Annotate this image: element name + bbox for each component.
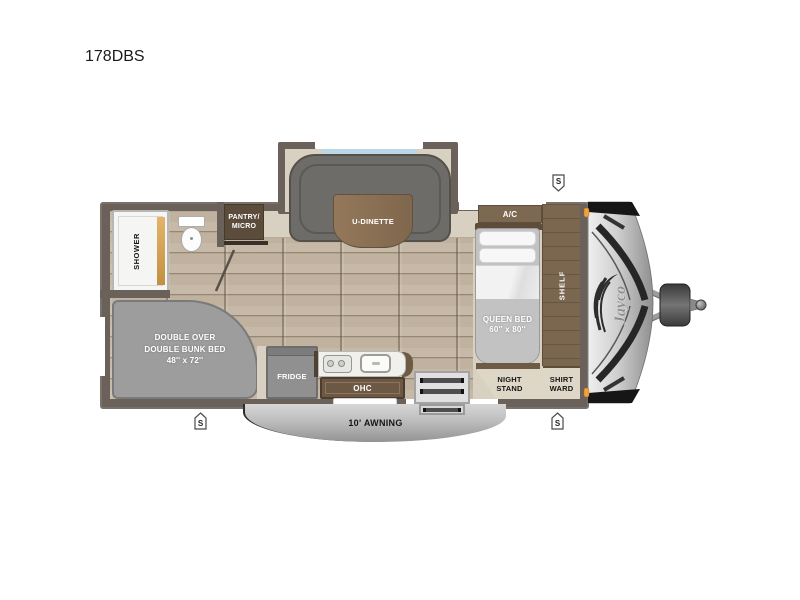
clearance-light-icon [584, 388, 589, 397]
speaker-badge-bottom-right: S [552, 413, 563, 429]
floorplan-canvas: 178DBS U-DINETTE SHOWER PANTRY/ MICRO [0, 0, 800, 600]
front-cap: Jayco [584, 202, 653, 403]
speaker-badge-top-right: S [553, 175, 564, 191]
speaker-badge-bottom-left: S [195, 413, 206, 429]
propane-tank-cover [660, 284, 690, 326]
clearance-light-icon [584, 208, 589, 217]
speaker-badge-label: S [556, 177, 562, 186]
bath-door-swing [216, 250, 234, 291]
hitch-ball [696, 300, 706, 310]
speaker-badge-label: S [198, 419, 204, 428]
speaker-badge-label: S [555, 419, 561, 428]
jayco-logo: Jayco [612, 286, 629, 325]
floorplan-overlay: Jayco S S S [0, 0, 800, 600]
